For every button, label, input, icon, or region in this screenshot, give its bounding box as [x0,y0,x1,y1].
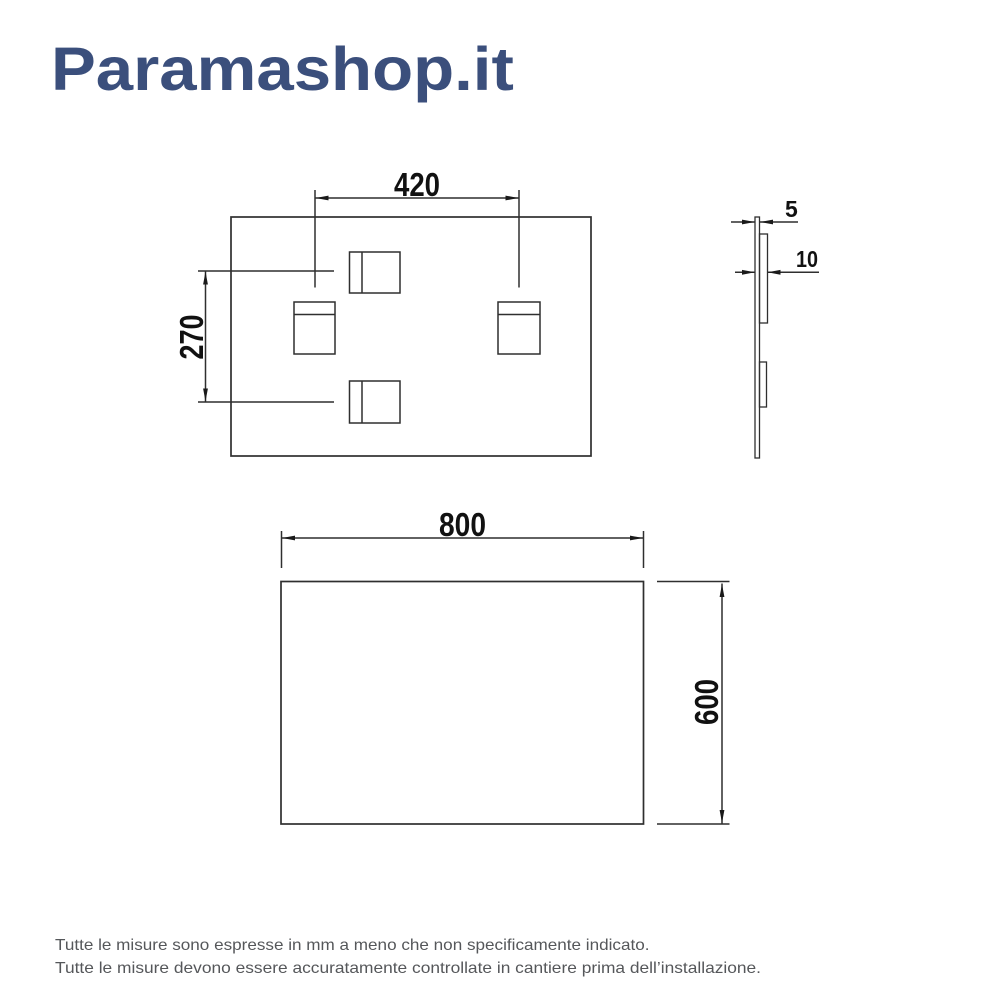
svg-text:5: 5 [785,196,798,222]
svg-text:600: 600 [688,679,725,725]
svg-text:10: 10 [796,246,818,272]
svg-text:420: 420 [394,166,440,203]
svg-text:800: 800 [439,506,486,543]
svg-text:270: 270 [173,315,210,360]
